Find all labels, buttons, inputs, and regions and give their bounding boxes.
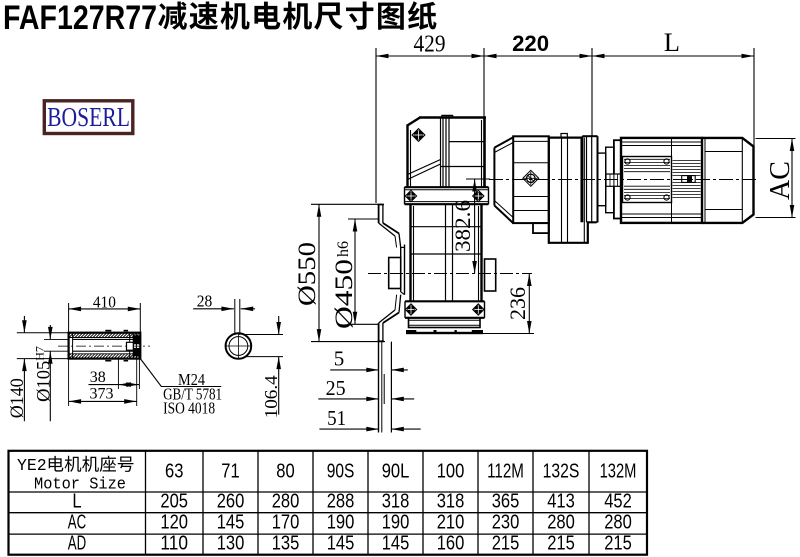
svg-text:110: 110 (160, 533, 188, 555)
svg-text:112M: 112M (487, 461, 524, 483)
svg-text:100: 100 (437, 461, 465, 483)
svg-text:190: 190 (327, 512, 355, 534)
svg-text:190: 190 (382, 512, 410, 534)
svg-text:71: 71 (221, 461, 239, 483)
svg-text:FAF127R77: FAF127R77 (3, 0, 157, 37)
svg-text:80: 80 (276, 461, 294, 483)
svg-text:BOSERL: BOSERL (47, 103, 130, 133)
svg-text:5: 5 (334, 347, 345, 371)
svg-text:373: 373 (90, 386, 114, 403)
svg-text:452: 452 (604, 491, 632, 513)
svg-text:ISO 4018: ISO 4018 (163, 399, 215, 418)
svg-text:215: 215 (547, 533, 575, 555)
svg-text:AD: AD (68, 533, 86, 555)
svg-text:410: 410 (93, 292, 116, 311)
svg-text:205: 205 (160, 491, 188, 513)
svg-text:130: 130 (217, 533, 245, 555)
svg-text:280: 280 (604, 512, 632, 534)
svg-text:288: 288 (327, 491, 355, 513)
svg-text:280: 280 (547, 512, 575, 534)
svg-text:L: L (664, 27, 680, 57)
svg-text:260: 260 (217, 491, 245, 513)
svg-text:132M: 132M (600, 461, 637, 483)
svg-text:AC: AC (765, 161, 796, 200)
svg-text:160: 160 (437, 533, 465, 555)
svg-text:120: 120 (160, 512, 188, 534)
svg-text:382.6: 382.6 (450, 200, 475, 252)
svg-text:132S: 132S (543, 461, 580, 483)
svg-text:236: 236 (505, 287, 530, 320)
svg-text:51: 51 (327, 406, 346, 430)
svg-text:Ø450: Ø450 (331, 259, 358, 329)
svg-text:220: 220 (512, 31, 549, 56)
svg-text:38: 38 (90, 369, 106, 386)
svg-text:145: 145 (327, 533, 355, 555)
svg-text:106.4: 106.4 (261, 375, 281, 418)
svg-text:90S: 90S (327, 461, 355, 483)
svg-text:210: 210 (437, 512, 465, 534)
svg-text:63: 63 (165, 461, 183, 483)
svg-text:Ø140: Ø140 (8, 378, 28, 418)
svg-text:145: 145 (382, 533, 410, 555)
svg-text:215: 215 (604, 533, 632, 555)
svg-text:28: 28 (197, 292, 213, 311)
svg-text:170: 170 (272, 512, 300, 534)
svg-text:230: 230 (492, 512, 520, 534)
svg-text:25: 25 (326, 376, 346, 400)
svg-text:Ø550: Ø550 (294, 242, 321, 306)
svg-text:280: 280 (272, 491, 300, 513)
svg-text:90L: 90L (382, 461, 410, 483)
svg-text:AC: AC (68, 512, 86, 534)
svg-text:YE2: YE2 (17, 456, 47, 475)
svg-text:215: 215 (492, 533, 520, 555)
svg-text:413: 413 (547, 491, 575, 513)
svg-text:365: 365 (492, 491, 520, 513)
svg-text:L: L (72, 491, 81, 513)
svg-text:318: 318 (437, 491, 465, 513)
svg-text:429: 429 (414, 32, 446, 58)
svg-text:h6: h6 (335, 241, 352, 257)
svg-text:318: 318 (382, 491, 410, 513)
svg-text:145: 145 (217, 512, 245, 534)
svg-text:135: 135 (272, 533, 300, 555)
